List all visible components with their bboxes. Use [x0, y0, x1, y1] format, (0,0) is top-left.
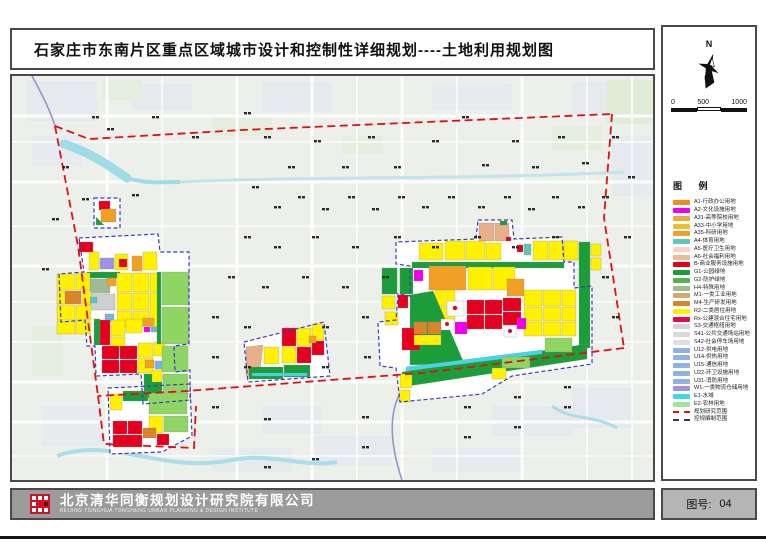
legend-color-swatch	[673, 332, 690, 337]
legend-item-label: H4-特殊用地	[694, 285, 725, 291]
legend-color-swatch	[673, 270, 690, 275]
legend-color-swatch	[673, 402, 690, 407]
map-frame	[10, 74, 655, 482]
scale-rule	[671, 107, 747, 113]
legend-item-label: A5-医疗卫生用地	[694, 246, 736, 252]
legend-item-label: E2-农林用地	[694, 401, 725, 407]
legend-color-swatch	[673, 348, 690, 353]
legend-color-swatch	[673, 309, 690, 314]
legend-item-label: A4-体育用地	[694, 238, 725, 244]
legend-color-swatch	[673, 239, 690, 244]
legend-item-label: U15-通信用地	[694, 362, 728, 368]
legend: 图 例 A1-行政办公用地A2-文化设施用地A31-高等院校用地A33-中小学用…	[673, 179, 749, 424]
title-box: 石家庄市东南片区重点区域城市设计和控制性详细规划----土地利用规划图	[10, 28, 655, 70]
page-title: 石家庄市东南片区重点区域城市设计和控制性详细规划----土地利用规划图	[12, 39, 554, 60]
legend-item-label: G2-防护绿地	[694, 277, 725, 283]
legend-line-swatch	[673, 419, 690, 421]
legend-color-swatch	[673, 216, 690, 221]
legend-color-swatch	[673, 301, 690, 306]
legend-color-swatch	[673, 278, 690, 283]
legend-item: E2-农林用地	[673, 401, 749, 409]
sheet-number-box: 图号: 04	[661, 488, 757, 520]
legend-color-swatch	[673, 200, 690, 205]
legend-item-label: U12-供电用地	[694, 347, 728, 353]
legend-item: S3-交通枢纽用地	[673, 323, 749, 331]
legend-item-label: A1-行政办公用地	[694, 200, 736, 206]
legend-color-swatch	[673, 394, 690, 399]
footer-bar: 北京清华同衡规划设计研究院有限公司 BEIJING TSINGHUA TONGH…	[10, 488, 655, 520]
legend-color-swatch	[673, 379, 690, 384]
sheet-number-label: 图号:	[686, 496, 711, 512]
legend-item: A33-中小学用地	[673, 222, 749, 230]
legend-item-label: Rx-公建混合住宅用地	[694, 316, 747, 322]
legend-item: 控规编制范围	[673, 416, 749, 424]
legend-item-label: W1-一类物流仓储用地	[694, 386, 748, 392]
scale-tick: 0	[671, 99, 675, 106]
legend-item-label: R2-二类居住用地	[694, 308, 736, 314]
legend-item-label: U14-供热用地	[694, 355, 728, 361]
legend-item-label: S3-交通枢纽用地	[694, 324, 736, 330]
legend-color-swatch	[673, 363, 690, 368]
legend-item: M1-一类工业用地	[673, 292, 749, 300]
legend-item: A2-文化设施用地	[673, 207, 749, 215]
legend-item: U14-供热用地	[673, 354, 749, 362]
legend-color-swatch	[673, 324, 690, 329]
legend-item-label: S42-社会停车场用地	[694, 339, 744, 345]
legend-item: W1-一类物流仓储用地	[673, 385, 749, 393]
legend-item-label: U31-消防用地	[694, 378, 728, 384]
legend-color-swatch	[673, 340, 690, 345]
scale-tick: 500	[697, 99, 709, 106]
legend-item: G2-防护绿地	[673, 277, 749, 285]
legend-color-swatch	[673, 262, 690, 267]
company-name-en: BEIJING TSINGHUA TONGHENG URBAN PLANNING…	[60, 508, 315, 515]
legend-item: S42-社会停车场用地	[673, 339, 749, 347]
legend-color-swatch	[673, 386, 690, 391]
legend-color-swatch	[673, 317, 690, 322]
tsinghua-tongheng-logo-icon	[30, 494, 50, 514]
legend-item: R2-二类居住用地	[673, 308, 749, 316]
plan-sheet: 石家庄市东南片区重点区域城市设计和控制性详细规划----土地利用规划图	[0, 0, 766, 542]
map-key-panel: N 05001000 图 例 A1-行政办公用地A2-文化设施用地A31-高等院…	[661, 25, 757, 481]
legend-item-label: B-商业服务设施用地	[694, 262, 744, 268]
legend-item-label: S41-公共交通场站用地	[694, 331, 750, 337]
bottom-rule	[0, 536, 766, 539]
legend-item: H4-特殊用地	[673, 284, 749, 292]
legend-color-swatch	[673, 371, 690, 376]
legend-color-swatch	[673, 293, 690, 298]
legend-item: A6-社会福利用地	[673, 253, 749, 261]
legend-item: U31-消防用地	[673, 377, 749, 385]
legend-item: A5-医疗卫生用地	[673, 246, 749, 254]
legend-title: 图 例	[673, 179, 749, 192]
legend-item: Rx-公建混合住宅用地	[673, 315, 749, 323]
legend-color-swatch	[673, 247, 690, 252]
legend-item: U12-供电用地	[673, 346, 749, 354]
land-use-map	[12, 76, 655, 480]
legend-color-swatch	[673, 355, 690, 360]
legend-item: U22-环卫设施用地	[673, 370, 749, 378]
company-name-cn: 北京清华同衡规划设计研究院有限公司	[60, 494, 315, 508]
legend-item-label: A31-高等院校用地	[694, 215, 739, 221]
legend-item-label: A6-社会福利用地	[694, 254, 736, 260]
legend-item-label: A2-文化设施用地	[694, 207, 736, 213]
legend-item: A31-高等院校用地	[673, 215, 749, 223]
legend-item: A1-行政办公用地	[673, 199, 749, 207]
legend-item-label: A35-科研用地	[694, 231, 728, 237]
compass-icon	[696, 51, 722, 93]
north-label: N	[663, 39, 755, 49]
legend-item: 规划研究范围	[673, 408, 749, 416]
legend-item: M4-生产研发用地	[673, 300, 749, 308]
scale-bar: 05001000	[671, 99, 747, 113]
scale-tick-labels: 05001000	[671, 99, 747, 106]
legend-item: U15-通信用地	[673, 362, 749, 370]
sheet-number-value: 04	[719, 498, 731, 510]
legend-item-label: U22-环卫设施用地	[694, 370, 739, 376]
legend-item-label: E1-水域	[694, 393, 714, 399]
legend-color-swatch	[673, 224, 690, 229]
legend-item-label: M4-生产研发用地	[694, 300, 737, 306]
legend-item-label: G1-公园绿地	[694, 269, 725, 275]
legend-item: A35-科研用地	[673, 230, 749, 238]
legend-color-swatch	[673, 208, 690, 213]
legend-item: E1-水域	[673, 393, 749, 401]
legend-item-label: 控规编制范围	[694, 417, 727, 423]
legend-item: A4-体育用地	[673, 238, 749, 246]
legend-color-swatch	[673, 231, 690, 236]
scale-tick: 1000	[731, 99, 747, 106]
legend-item-label: 规划研究范围	[694, 409, 727, 415]
legend-color-swatch	[673, 255, 690, 260]
legend-item: S41-公共交通场站用地	[673, 331, 749, 339]
legend-item: B-商业服务设施用地	[673, 261, 749, 269]
legend-item-label: M1-一类工业用地	[694, 293, 737, 299]
legend-color-swatch	[673, 286, 690, 291]
legend-line-swatch	[673, 411, 690, 413]
north-indicator: N	[663, 39, 755, 93]
legend-item: G1-公园绿地	[673, 269, 749, 277]
legend-item-label: A33-中小学用地	[694, 223, 733, 229]
